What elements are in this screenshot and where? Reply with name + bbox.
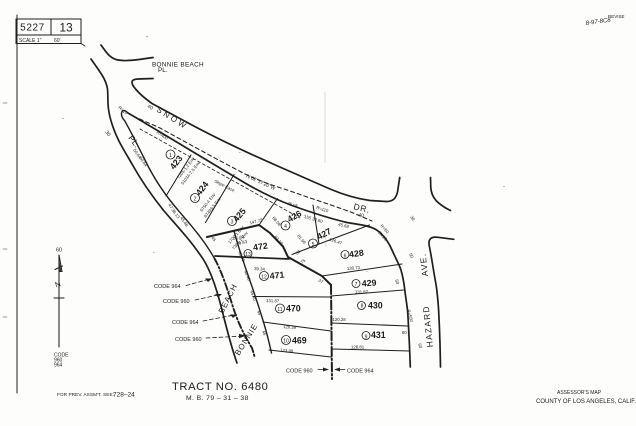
svg-text:60: 60 <box>56 248 62 254</box>
svg-text:10: 10 <box>283 339 289 345</box>
svg-text:120.28: 120.28 <box>333 317 347 322</box>
svg-text:425: 425 <box>231 206 248 224</box>
svg-text:REVISE: REVISE <box>608 14 625 19</box>
svg-text:R=10: R=10 <box>117 105 129 116</box>
svg-text:147.73: 147.73 <box>249 217 264 225</box>
svg-text:40: 40 <box>358 212 365 219</box>
svg-text:2: 2 <box>194 197 197 203</box>
svg-text:964: 964 <box>54 363 63 369</box>
svg-text:426: 426 <box>286 208 304 224</box>
svg-text:5: 5 <box>312 242 315 248</box>
svg-text:45.05: 45.05 <box>287 201 299 209</box>
svg-text:90.64: 90.64 <box>138 156 149 168</box>
svg-text:6: 6 <box>344 254 347 260</box>
svg-text:429: 429 <box>361 277 376 288</box>
svg-text:AVE.: AVE. <box>418 252 430 276</box>
svg-text:PL.: PL. <box>126 133 142 149</box>
svg-text:BONNIE: BONNIE <box>233 322 260 357</box>
svg-text:9: 9 <box>365 335 368 341</box>
svg-text:430: 430 <box>368 301 383 311</box>
svg-text:CODE 960: CODE 960 <box>163 299 190 305</box>
svg-text:1: 1 <box>169 153 172 159</box>
svg-text:R=110: R=110 <box>316 205 330 214</box>
svg-text:45.48: 45.48 <box>179 216 190 228</box>
svg-text:126.29: 126.29 <box>283 324 297 330</box>
svg-text:4: 4 <box>284 224 287 230</box>
svg-text:131.62: 131.62 <box>355 289 369 294</box>
svg-text:728–24: 728–24 <box>113 392 135 399</box>
svg-text:N: N <box>54 279 62 289</box>
svg-text:N 62°17'20"W: N 62°17'20"W <box>245 173 276 192</box>
svg-text:128.81: 128.81 <box>351 345 365 350</box>
svg-text:469: 469 <box>292 336 307 346</box>
svg-text:431: 431 <box>371 330 386 340</box>
svg-text:37: 37 <box>318 278 325 285</box>
svg-text:TRACT NO. 6480: TRACT NO. 6480 <box>172 381 268 393</box>
svg-text:30: 30 <box>103 130 111 138</box>
svg-text:CODE 960: CODE 960 <box>286 369 313 375</box>
svg-text:8-97-8C8: 8-97-8C8 <box>585 17 611 27</box>
svg-text:50: 50 <box>417 343 424 350</box>
svg-text:471: 471 <box>269 269 285 280</box>
svg-text:7: 7 <box>355 282 358 288</box>
svg-text:45: 45 <box>261 330 267 337</box>
svg-text:13: 13 <box>59 21 73 35</box>
svg-text:81.69: 81.69 <box>296 233 307 245</box>
svg-text:40: 40 <box>146 104 154 112</box>
svg-text:SNOW: SNOW <box>155 105 190 131</box>
svg-text:40.40: 40.40 <box>243 270 252 282</box>
svg-text:13: 13 <box>245 252 251 258</box>
svg-text:SCALE 1": SCALE 1" <box>19 38 42 44</box>
svg-text:63.10: 63.10 <box>273 234 284 246</box>
svg-text:M. B. 79 – 31 – 38: M. B. 79 – 31 – 38 <box>186 395 249 402</box>
svg-text:CODE 964: CODE 964 <box>347 369 374 375</box>
svg-text:75: 75 <box>299 257 306 264</box>
svg-text:50: 50 <box>394 279 401 286</box>
svg-text:12: 12 <box>261 275 267 281</box>
svg-text:HAZARD: HAZARD <box>421 305 435 348</box>
svg-text:COUNTY OF LOS ANGELES, CALIF.: COUNTY OF LOS ANGELES, CALIF. <box>536 399 636 405</box>
svg-text:CODE 960: CODE 960 <box>175 337 202 343</box>
svg-text:BEACH: BEACH <box>217 282 240 315</box>
svg-text:ASSESSOR'S MAP: ASSESSOR'S MAP <box>557 390 602 396</box>
svg-text:38: 38 <box>294 248 301 255</box>
svg-text:50: 50 <box>408 252 415 259</box>
svg-text:R=400: R=400 <box>155 130 169 141</box>
svg-text:123.98: 123.98 <box>280 348 294 354</box>
svg-text:8: 8 <box>361 304 364 310</box>
svg-text:PL.: PL. <box>158 67 168 74</box>
svg-text:45: 45 <box>210 235 217 242</box>
svg-text:5227: 5227 <box>20 23 45 34</box>
svg-text:CODE 964: CODE 964 <box>172 320 199 326</box>
svg-text:CODE 964: CODE 964 <box>154 284 181 290</box>
svg-text:60': 60' <box>54 38 61 44</box>
svg-text:30: 30 <box>409 215 416 222</box>
svg-text:126.47: 126.47 <box>329 237 344 246</box>
svg-text:FOR PREV. ASSM'T. SEE:: FOR PREV. ASSM'T. SEE: <box>57 392 114 398</box>
svg-text:11: 11 <box>277 307 282 313</box>
svg-text:39.34: 39.34 <box>254 266 266 272</box>
svg-text:470: 470 <box>286 304 301 314</box>
svg-text:60: 60 <box>402 330 407 335</box>
svg-text:428: 428 <box>348 248 364 260</box>
svg-text:472: 472 <box>252 241 268 253</box>
svg-text:131.87: 131.87 <box>266 298 280 303</box>
svg-text:424: 424 <box>194 179 211 197</box>
svg-text:130.73: 130.73 <box>347 265 361 271</box>
